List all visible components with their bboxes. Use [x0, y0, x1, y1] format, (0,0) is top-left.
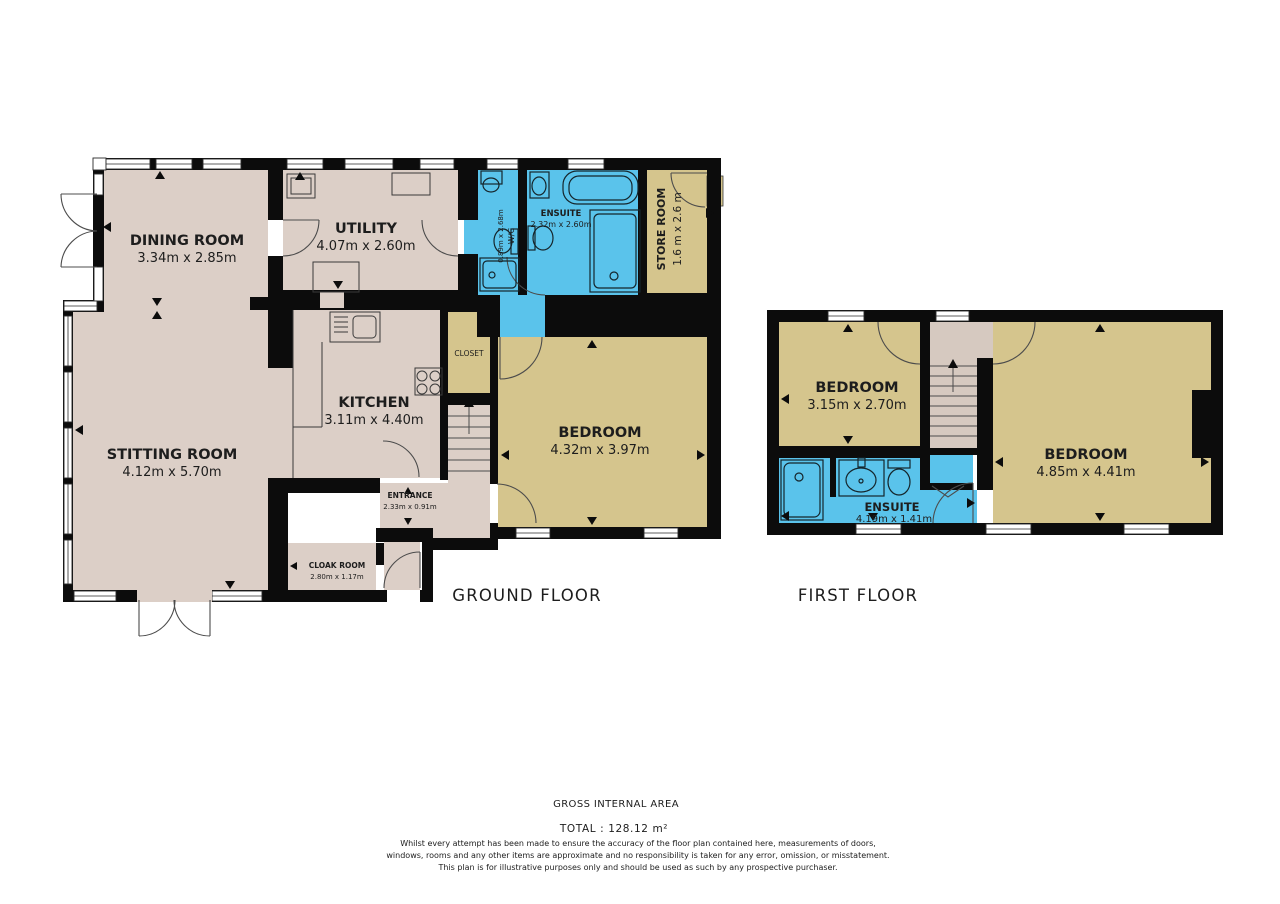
utility-dims: 4.07m x 2.60m	[316, 239, 415, 254]
ensuite-first-dims: 4.19m x 1.41m	[856, 514, 932, 525]
closet-label: CLOSET	[454, 349, 484, 358]
kitchen-dims: 3.11m x 4.40m	[324, 413, 423, 428]
bedroom-left-dims: 3.15m x 2.70m	[807, 398, 906, 413]
total-area-value: TOTAL : 128.12 m²	[559, 823, 668, 835]
floorplan-page: DINING ROOM 3.34m x 2.85m UTILITY 4.07m …	[0, 0, 1280, 904]
wc-dims: 0.89m x 2.68m	[497, 209, 505, 263]
sitting-room-dims: 4.12m x 5.70m	[122, 465, 221, 480]
room-kitchen-floor	[293, 310, 440, 478]
cloak-room-label: CLOAK ROOM	[309, 561, 365, 570]
chimney-breast	[1192, 390, 1211, 458]
bedroom-right-label: BEDROOM	[1044, 447, 1127, 463]
entrance-dims: 2.33m x 0.91m	[383, 503, 437, 511]
vestibule-floor	[384, 542, 420, 590]
entrance-label: ENTRANCE	[388, 491, 433, 500]
dining-room-label: DINING ROOM	[130, 233, 244, 249]
store-room-label: STORE ROOM	[655, 188, 668, 271]
cloak-room-dims: 2.80m x 1.17m	[310, 573, 364, 581]
footer: GROSS INTERNAL AREA TOTAL : 128.12 m² Wh…	[386, 799, 889, 872]
first-floor-plan: BEDROOM 3.15m x 2.70m BEDROOM 4.85m x 4.…	[767, 310, 1223, 535]
airing-cupboard-floor	[930, 455, 973, 483]
floor-titles: GROUND FLOOR FIRST FLOOR	[452, 586, 918, 605]
ensuite-first-label: ENSUITE	[864, 500, 919, 514]
wc-label: W/C	[507, 227, 516, 244]
room-bedroom-right-floor	[993, 322, 1211, 523]
floorplan-drawing: DINING ROOM 3.34m x 2.85m UTILITY 4.07m …	[0, 0, 1280, 904]
first-floor-title: FIRST FLOOR	[798, 586, 918, 605]
disclaimer-line-2: windows, rooms and any other items are a…	[386, 851, 889, 860]
ensuite-ground-label: ENSUITE	[541, 209, 582, 219]
kitchen-label: KITCHEN	[338, 395, 409, 411]
sitting-room-label: STITTING ROOM	[107, 447, 238, 463]
dining-room-dims: 3.34m x 2.85m	[137, 251, 236, 266]
store-room-dims: 1.6 m x 2.6 m	[672, 192, 684, 265]
utility-label: UTILITY	[335, 221, 398, 237]
landing-floor	[930, 322, 993, 358]
ground-floor-title: GROUND FLOOR	[452, 586, 602, 605]
bedroom-left-label: BEDROOM	[815, 380, 898, 396]
disclaimer-line-1: Whilst every attempt has been made to en…	[400, 839, 876, 848]
ground-floor-plan: DINING ROOM 3.34m x 2.85m UTILITY 4.07m …	[61, 158, 723, 636]
room-ensuite-ground-floor	[527, 170, 638, 295]
bedroom-ground-dims: 4.32m x 3.97m	[550, 443, 649, 458]
ensuite-ground-dims: 2.32m x 2.60m	[530, 220, 591, 229]
first-floor-rooms	[779, 322, 1211, 523]
bedroom-ground-label: BEDROOM	[558, 425, 641, 441]
bedroom-right-dims: 4.85m x 4.41m	[1036, 465, 1135, 480]
disclaimer-line-3: This plan is for illustrative purposes o…	[437, 863, 837, 872]
gross-internal-area-title: GROSS INTERNAL AREA	[553, 799, 679, 810]
